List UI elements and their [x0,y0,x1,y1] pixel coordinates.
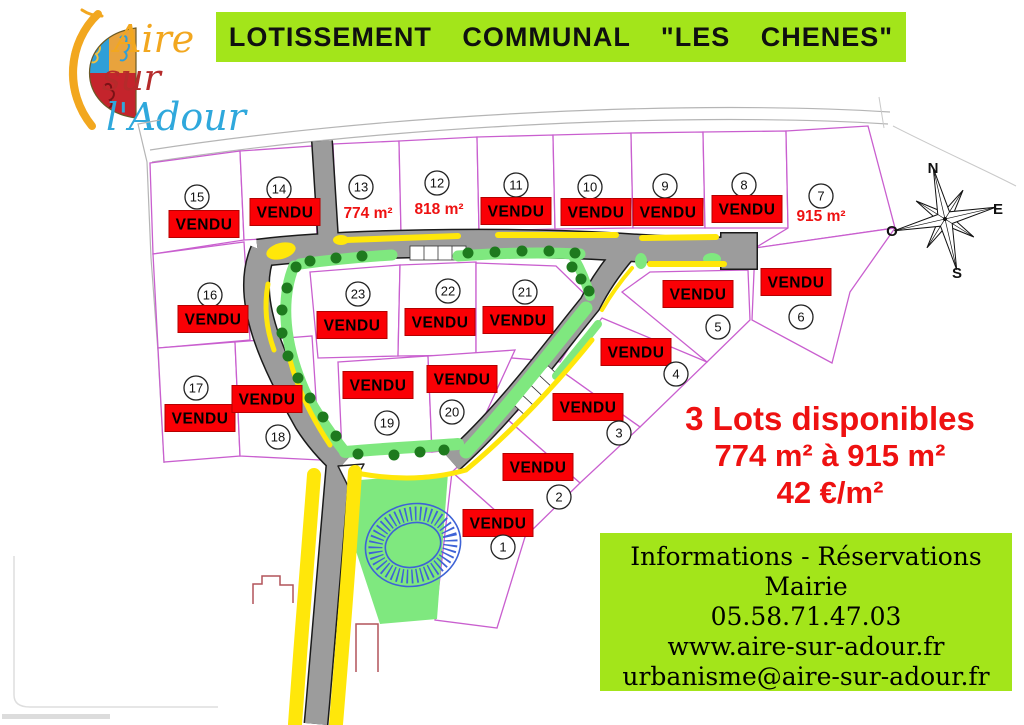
svg-text:VENDU: VENDU [670,287,727,304]
svg-text:VENDU: VENDU [560,400,617,417]
svg-text:VENDU: VENDU [176,217,233,234]
lot-1-circle: 1 [491,535,515,559]
available-lots-sizes: 774 m² à 915 m² [640,437,1020,474]
info-phone: 05.58.71.47.03 [600,602,1012,632]
lot-13-circle: 13 [349,175,373,199]
svg-text:20: 20 [445,405,459,420]
svg-text:VENDU: VENDU [768,275,825,292]
svg-text:1: 1 [499,540,506,555]
compass-south-label: S [952,265,962,282]
lot-4-circle: 4 [664,362,688,386]
lot-13-area: 774 m² [343,205,392,222]
price-per-sqm: 42 €/m² [640,474,1020,511]
contact-info-box: Informations - Réservations Mairie 05.58… [600,533,1012,691]
svg-text:22: 22 [441,284,455,299]
compass-east-label: E [993,201,1003,218]
lot-15-circle: 15 [185,185,209,209]
svg-text:9: 9 [661,179,668,194]
lot-23-circle: 23 [346,282,370,306]
lot-19-status: VENDU [343,372,413,399]
lot-11-circle: 11 [504,173,528,197]
svg-text:18: 18 [271,430,285,445]
lot-3-circle: 3 [607,421,631,445]
availability-notice: 3 Lots disponibles 774 m² à 915 m² 42 €/… [640,400,1020,511]
lot-14-circle: 14 [267,177,291,201]
lot-18-circle: 18 [266,425,290,449]
svg-text:19: 19 [380,416,394,431]
svg-text:VENDU: VENDU [568,205,625,222]
lot-6-circle: 6 [789,305,813,329]
lot-23-status: VENDU [317,312,387,339]
lot-6-status: VENDU [761,269,831,296]
lot-11-status: VENDU [481,198,551,225]
lot-5-status: VENDU [663,281,733,308]
available-lots-count: 3 Lots disponibles [640,400,1020,437]
lot-9-circle: 9 [653,174,677,198]
lot-21-circle: 21 [513,280,537,304]
lot-12-circle: 12 [425,171,449,195]
svg-text:VENDU: VENDU [257,205,314,222]
svg-text:23: 23 [351,287,365,302]
svg-text:16: 16 [203,288,217,303]
svg-text:10: 10 [583,180,597,195]
lot-22-circle: 22 [436,279,460,303]
compass-rose: N E S O [883,157,1008,282]
lot-2-circle: 2 [547,485,571,509]
svg-text:VENDU: VENDU [510,460,567,477]
plan-poster: Aire sur l'Adour LOTISSEMENT COMMUNAL "L… [0,0,1024,725]
svg-text:15: 15 [190,190,204,205]
svg-text:VENDU: VENDU [239,392,296,409]
lot-18-status: VENDU [232,386,302,413]
lot-15-status: VENDU [169,211,239,238]
lot-7-circle: 7 [809,184,833,208]
lot-20-status: VENDU [427,366,497,393]
svg-text:13: 13 [354,180,368,195]
lot-14-status: VENDU [250,199,320,226]
svg-text:VENDU: VENDU [350,378,407,395]
svg-text:VENDU: VENDU [608,345,665,362]
lot-8-status: VENDU [712,196,782,223]
lot-10-status: VENDU [561,199,631,226]
svg-text:8: 8 [740,178,747,193]
svg-text:4: 4 [672,367,679,382]
svg-text:VENDU: VENDU [719,202,776,219]
compass-west-label: O [886,223,898,240]
svg-text:VENDU: VENDU [185,312,242,329]
lot-12-area: 818 m² [414,201,463,218]
svg-text:11: 11 [509,178,523,193]
svg-text:3: 3 [615,426,622,441]
svg-text:2: 2 [555,490,562,505]
info-office: Mairie [600,572,1012,602]
lot-1-status: VENDU [463,510,533,537]
svg-text:7: 7 [817,189,824,204]
lot-17-circle: 17 [184,376,208,400]
svg-text:VENDU: VENDU [434,372,491,389]
lot-8-circle: 8 [732,173,756,197]
green-space [354,473,448,624]
svg-text:14: 14 [272,182,286,197]
lot-9-status: VENDU [633,199,703,226]
lot-10-circle: 10 [578,175,602,199]
lot-16-status: VENDU [178,306,248,333]
footer-smudge [2,714,110,719]
lot-22-status: VENDU [405,309,475,336]
svg-text:VENDU: VENDU [490,313,547,330]
info-email: urbanisme@aire-sur-adour.fr [600,662,1012,692]
lot-5-circle: 5 [706,315,730,339]
lot-21-status: VENDU [483,307,553,334]
compass-north-label: N [928,160,939,177]
svg-text:6: 6 [797,310,804,325]
lot-17-status: VENDU [165,405,235,432]
lot-20-circle: 20 [440,400,464,424]
info-website: www.aire-sur-adour.fr [600,632,1012,662]
svg-text:12: 12 [430,176,444,191]
lot-19-circle: 19 [375,411,399,435]
svg-text:21: 21 [518,285,532,300]
svg-text:VENDU: VENDU [488,204,545,221]
svg-text:VENDU: VENDU [172,411,229,428]
info-title: Informations - Réservations [600,542,1012,572]
lot-7-area: 915 m² [796,208,845,225]
svg-text:VENDU: VENDU [412,315,469,332]
parcel-19 [338,356,432,452]
parcel-17 [158,342,240,462]
lot-4-status: VENDU [601,339,671,366]
svg-text:VENDU: VENDU [324,318,381,335]
svg-text:5: 5 [714,320,721,335]
lot-16-circle: 16 [198,283,222,307]
lot-3-status: VENDU [553,394,623,421]
lot-2-status: VENDU [503,454,573,481]
svg-text:17: 17 [189,381,203,396]
svg-text:VENDU: VENDU [470,516,527,533]
svg-text:VENDU: VENDU [640,205,697,222]
